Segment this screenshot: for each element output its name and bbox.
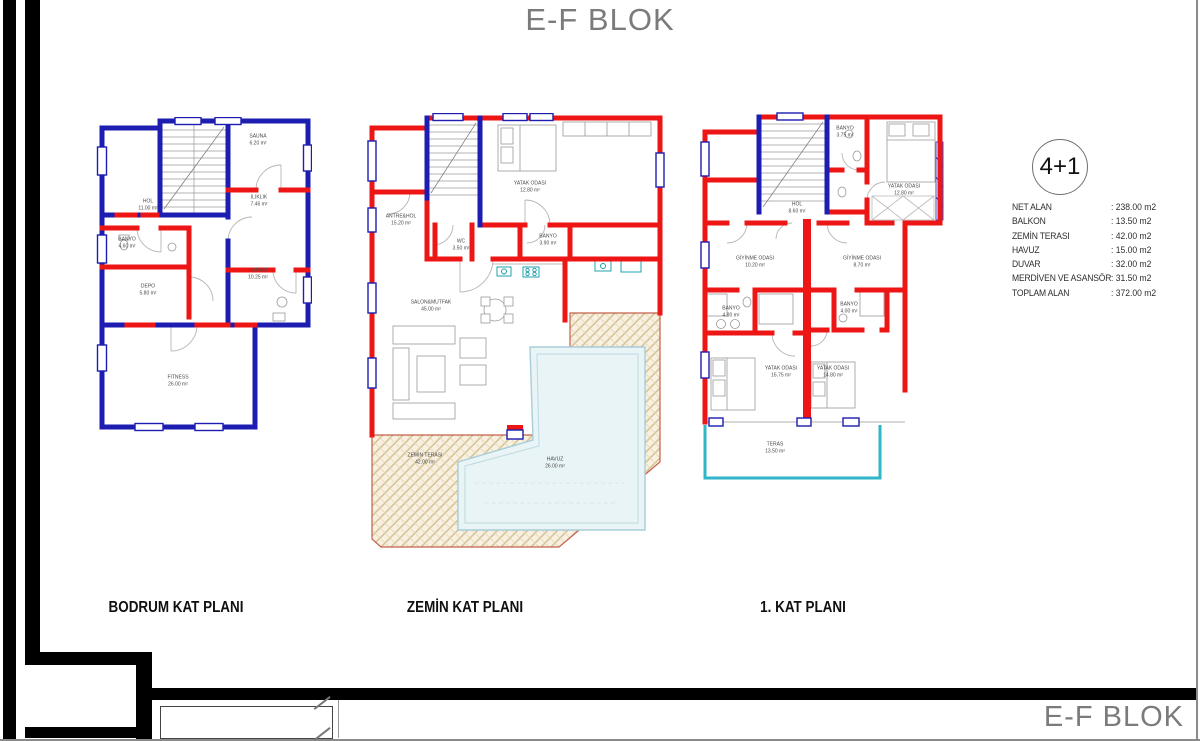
title-block [160,706,333,739]
zemin-plan-drawing [365,113,665,558]
frame-bar-bottom [150,688,1198,700]
furniture [711,122,935,410]
frame-bar-step-top [25,652,152,665]
zemin-plan: YATAK ODASI12.80 m²ANTRE&HOL15.20 m²WC3.… [365,113,665,558]
drawing-sheet: E-F BLOK E-F BLOK 4+1 NET ALAN: 238.00 m… [0,0,1200,741]
stair-shaft-walls [427,118,480,225]
legend-row: BALKON: 13.50 m2 [1012,215,1179,229]
windows [98,118,312,431]
bodrum-plan-drawing [77,117,312,432]
legend-row: MERDİVEN VE ASANSÖR: 31.50 m2 [1012,272,1179,286]
bath-fixtures [707,130,884,329]
frame-line-bottom [0,739,1200,741]
caption-bodrum: BODRUM KAT PLANI [109,599,244,617]
legend-row: DUVAR: 32.00 m2 [1012,258,1179,272]
frame-bar-left-inner [25,0,40,653]
caption-kat1: 1. KAT PLANI [760,599,846,617]
title-block-divider [338,700,339,738]
legend-row: HAVUZ: 15.00 m2 [1012,244,1179,258]
bodrum-plan: SAUNA6.20 m²HOL11.00 m²ILIKLIK7.46 m²BAN… [77,117,312,432]
sheet-title: E-F BLOK [0,2,1200,38]
legend-rows: NET ALAN: 238.00 m2BALKON: 13.50 m2ZEMİN… [1012,201,1197,301]
stairs [429,123,478,195]
teras-outline [705,422,905,478]
frame-bar-left-outer [3,0,16,739]
frame-line-right [1196,0,1198,741]
kat1-plan-drawing [697,112,952,487]
interior-walls [102,190,308,325]
frame-bar-step-bottom [25,727,137,738]
stairs [162,123,226,213]
exterior-walls [102,121,308,427]
unit-type-badge: 4+1 [1032,139,1088,195]
kat1-plan: BANYO3.75 m²YATAK ODASI12.80 m²HOL8.60 m… [697,112,952,487]
stairs [761,122,825,207]
legend-row: ZEMİN TERASI: 42.00 m2 [1012,230,1179,244]
caption-zemin: ZEMİN KAT PLANI [407,599,523,617]
bath-fixtures [119,235,287,321]
sheet-footer-title: E-F BLOK [1044,701,1184,734]
legend-row: NET ALAN: 238.00 m2 [1012,201,1179,215]
legend-row: TOPLAM ALAN: 372.00 m2 [1012,287,1179,301]
